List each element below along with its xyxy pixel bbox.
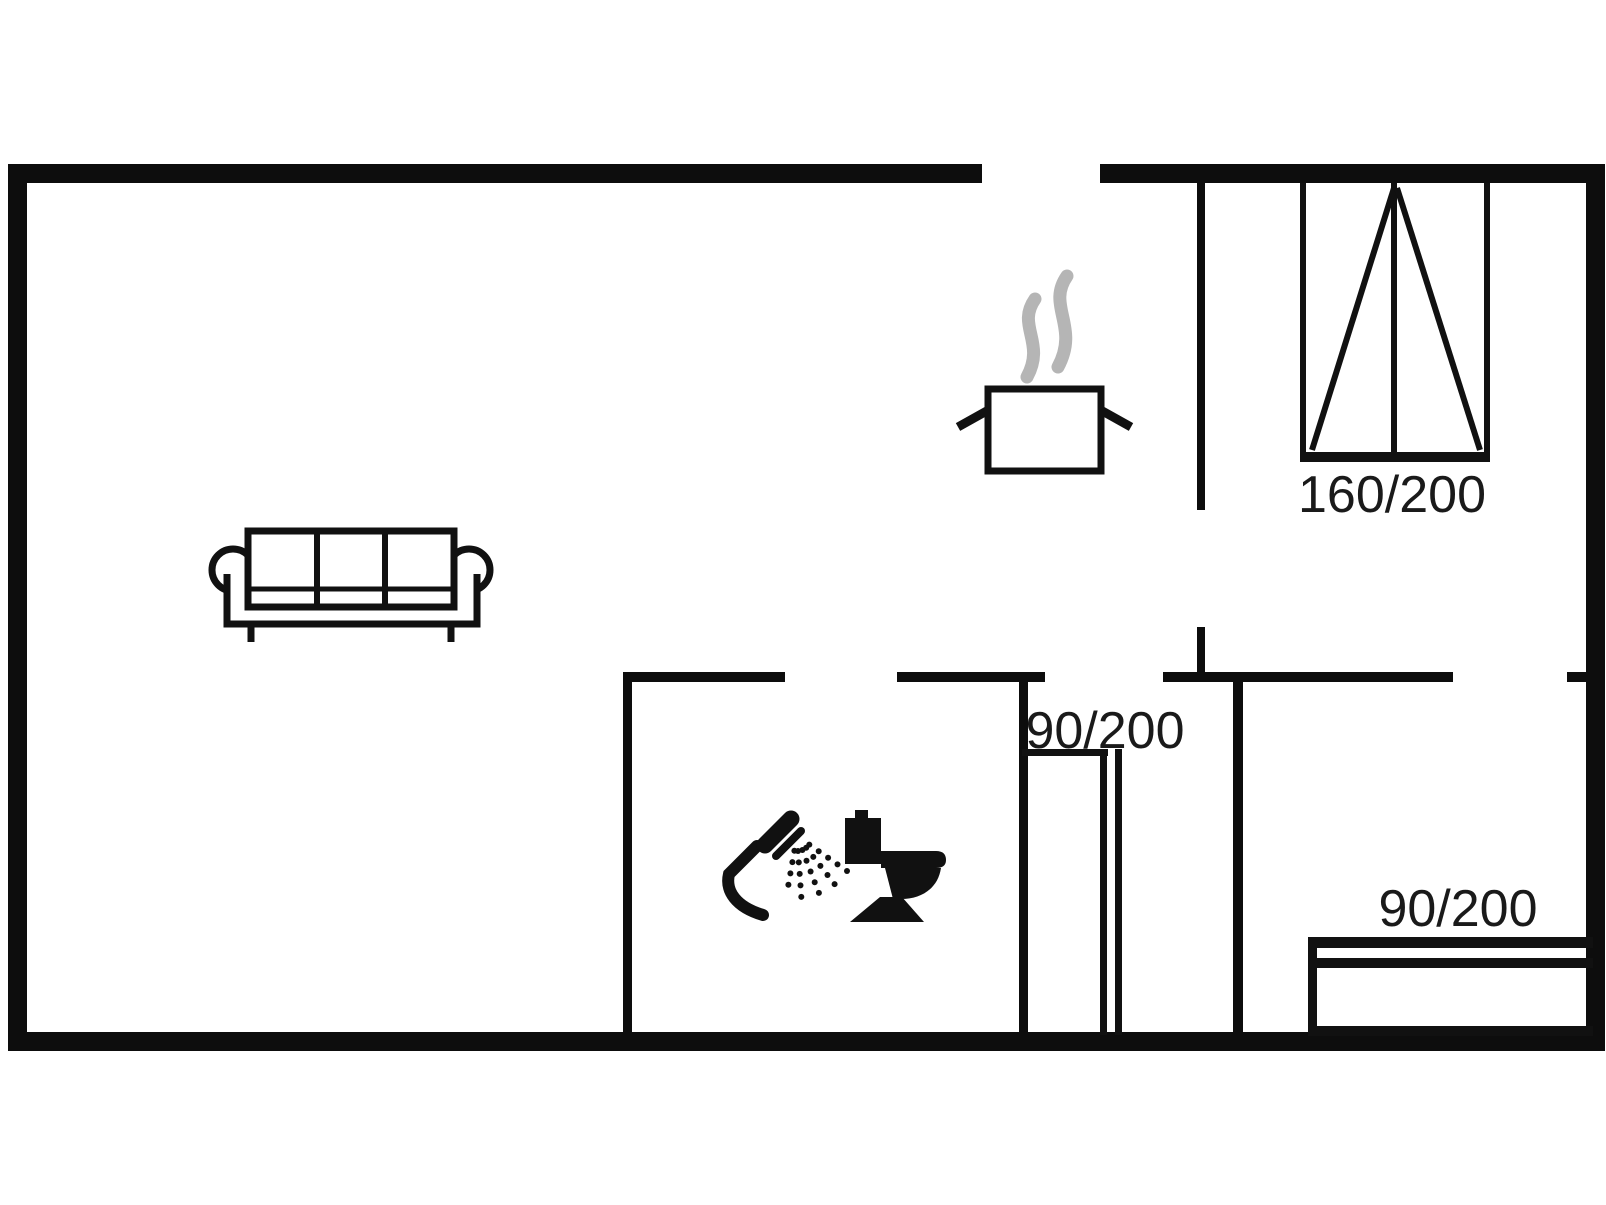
water-droplet — [796, 859, 802, 865]
water-droplet — [816, 890, 822, 896]
water-droplet — [810, 854, 816, 860]
water-droplet — [844, 868, 850, 874]
water-droplet — [804, 858, 810, 864]
wall-kitchen-divider-upper — [1197, 183, 1205, 510]
water-droplet — [817, 863, 823, 869]
wall-top-wall-left — [8, 164, 982, 183]
wall-top-wall-right — [1100, 164, 1605, 183]
wall-bedroom-partition-wall — [1233, 672, 1243, 1032]
water-droplet — [791, 848, 797, 854]
water-droplet — [808, 869, 814, 875]
water-droplet — [825, 872, 831, 878]
water-droplet — [785, 882, 791, 888]
water-droplet — [835, 861, 841, 867]
steam-icon — [1058, 276, 1067, 367]
water-droplet — [787, 870, 793, 876]
wall-right-wall — [1586, 164, 1605, 1051]
water-droplet — [798, 882, 804, 888]
water-droplet — [832, 881, 838, 887]
wall-bathroom-left-wall — [623, 672, 632, 1032]
wall-left-wall — [8, 164, 27, 1051]
double-bed-size-label: 160/200 — [1298, 466, 1486, 524]
water-droplet — [789, 859, 795, 865]
floor-plan-page: 160/200 90/200 90/200 — [0, 0, 1606, 1205]
sofa-icon — [212, 531, 490, 642]
right-bed-size-label: 90/200 — [1378, 880, 1537, 938]
wall-bathroom-top-wall-left — [623, 672, 785, 682]
steam-icon — [1027, 299, 1035, 377]
wall-hall-top-wall — [1163, 672, 1453, 682]
water-droplet — [825, 855, 831, 861]
water-droplet — [797, 871, 803, 877]
water-droplet — [816, 848, 822, 854]
water-droplet — [812, 879, 818, 885]
floor-plan: 160/200 90/200 90/200 — [0, 0, 1606, 1205]
water-droplet — [798, 894, 804, 900]
alcove-bed-size-label: 90/200 — [1025, 702, 1184, 760]
wall-kitchen-divider-stub — [1197, 627, 1205, 674]
wall-hall-top-wall-right-stub — [1567, 672, 1586, 682]
